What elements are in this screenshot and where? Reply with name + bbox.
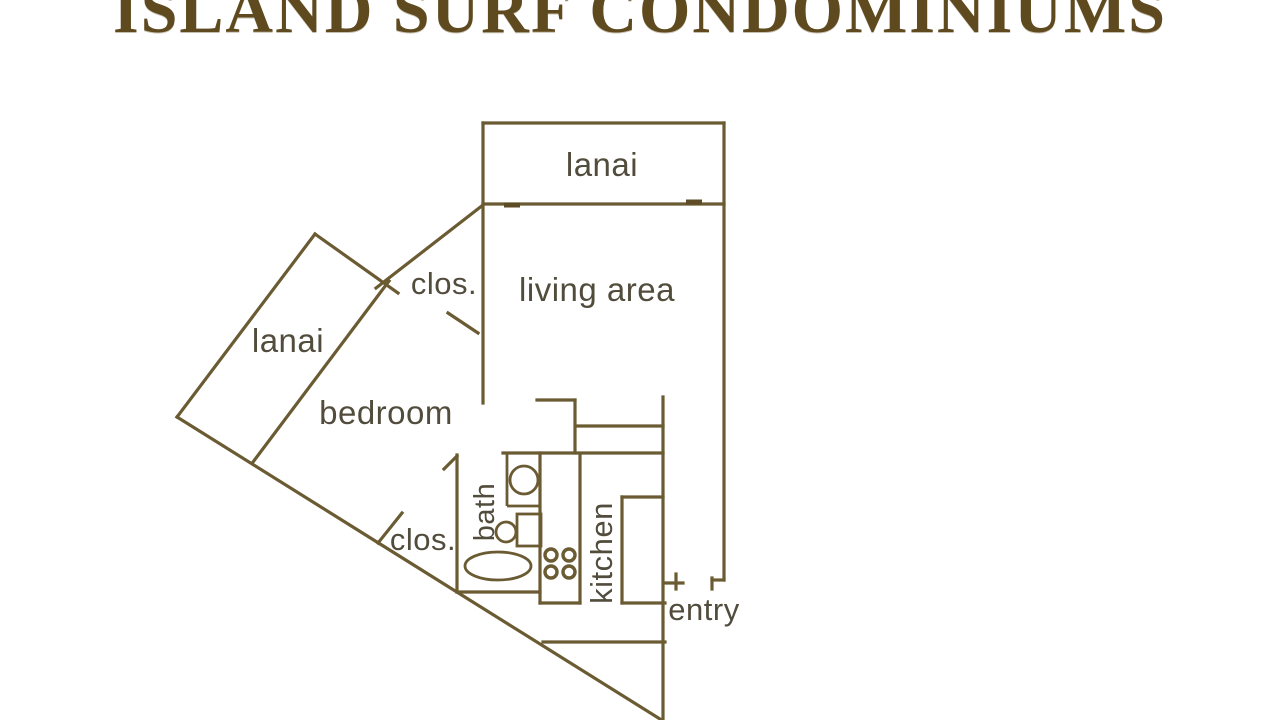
- burner: [563, 566, 575, 578]
- toilet-bowl: [510, 466, 538, 494]
- floor-plan-drawing: lanai living area clos. lanai bedroom cl…: [0, 0, 1280, 720]
- label-closet-upper: clos.: [411, 266, 477, 301]
- lanai-living-divider: [483, 202, 724, 205]
- burner: [563, 549, 575, 561]
- sink-vanity: [517, 514, 541, 546]
- door-swing-bath: [444, 456, 457, 469]
- stove-burners-icon: [545, 549, 575, 578]
- room-labels: lanai living area clos. lanai bedroom cl…: [252, 146, 740, 627]
- label-lanai-bedroom: lanai: [252, 322, 324, 359]
- label-living-area: living area: [519, 271, 675, 308]
- label-bath: bath: [469, 483, 501, 541]
- kitchen-counter: [622, 497, 665, 603]
- toilet-fixture: [507, 454, 540, 506]
- bathtub: [465, 552, 531, 580]
- label-closet-lower: clos.: [390, 522, 456, 557]
- label-bedroom: bedroom: [319, 394, 453, 431]
- wall-bedroom-lanai-divider: [253, 281, 389, 462]
- door-swing-closet-upper: [448, 313, 478, 333]
- burner: [545, 549, 557, 561]
- sink-fixture: [496, 514, 541, 546]
- floor-plan-page: ISLAND SURF CONDOMINIUMS: [0, 0, 1280, 720]
- label-lanai-top: lanai: [566, 146, 638, 183]
- burner: [545, 566, 557, 578]
- label-entry: entry: [668, 592, 739, 627]
- label-kitchen: kitchen: [584, 502, 619, 604]
- interior-walls: [378, 313, 683, 720]
